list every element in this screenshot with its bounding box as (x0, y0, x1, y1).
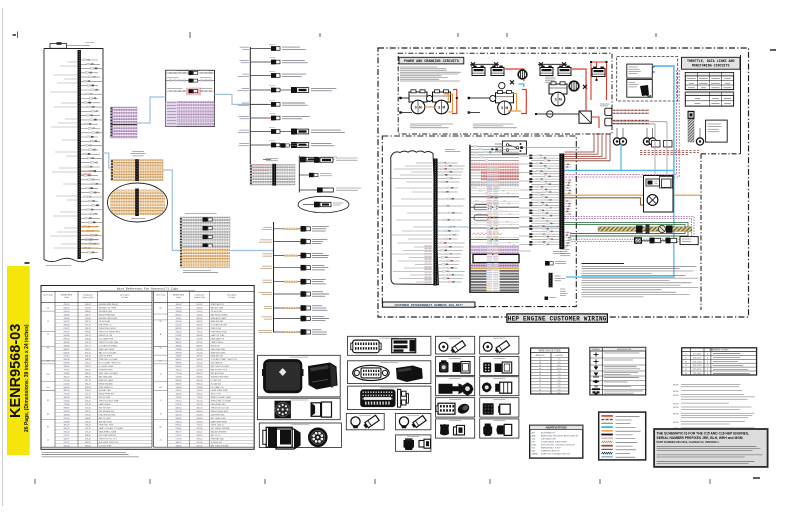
svg-text:958-66: 958-66 (176, 363, 182, 365)
svg-text:FUEL GND COOLANT: FUEL GND COOLANT (99, 372, 119, 375)
svg-text:475-14: 475-14 (176, 401, 182, 403)
svg-text:368-87: 368-87 (197, 345, 203, 347)
svg-text:M: M (419, 105, 422, 109)
svg-text:SERIAL NUMBER PREFIXES JRE, BL: SERIAL NUMBER PREFIXES JRE, BLH, WRH and… (657, 436, 744, 440)
svg-text:C5: C5 (47, 308, 49, 310)
svg-text:170-21: 170-21 (85, 363, 91, 365)
svg-text:LAMP OIL FUEL: LAMP OIL FUEL (211, 334, 225, 337)
svg-text:Wire Reference For Harness(?): Wire Reference For Harness(?) Code (117, 286, 178, 290)
svg-text:W: W (160, 321, 162, 323)
svg-text:199-80: 199-80 (85, 332, 91, 334)
svg-text:350-85: 350-85 (176, 418, 182, 420)
svg-text:SW OIL PWR: SW OIL PWR (99, 397, 111, 399)
svg-text:SIG BAT CAN: SIG BAT CAN (99, 389, 111, 392)
svg-text:THROTTLE, DATA LINKS AND: THROTTLE, DATA LINKS AND (687, 59, 735, 63)
svg-text:449-33: 449-33 (197, 380, 203, 382)
svg-text:550-96: 550-96 (197, 339, 203, 341)
svg-text:CAN PRES CAN: CAN PRES CAN (211, 348, 226, 351)
svg-text:SPEED OIL SW: SPEED OIL SW (99, 335, 113, 337)
svg-text:663-45: 663-45 (64, 387, 70, 389)
svg-text:535-85: 535-85 (197, 414, 203, 416)
svg-text:105-50: 105-50 (197, 401, 203, 403)
svg-text:SM: SM (532, 451, 535, 453)
svg-text:THE SCHEMATIC IS FOR THE C15 A: THE SCHEMATIC IS FOR THE C15 AND C18 HEP… (657, 431, 750, 435)
svg-text:114-1560: 114-1560 (693, 373, 702, 375)
svg-text:127-77: 127-77 (64, 442, 70, 444)
svg-text:585-25: 585-25 (64, 428, 70, 430)
svg-text:846-67: 846-67 (64, 349, 70, 351)
svg-text:HI KEY IN: HI KEY IN (211, 345, 220, 347)
svg-text:Chart Code: Chart Code (43, 294, 53, 297)
svg-text:mm2(SI): mm2(SI) (555, 355, 563, 357)
svg-text:784-19: 784-19 (85, 356, 91, 358)
svg-text:866-27: 866-27 (176, 339, 182, 341)
svg-text:SMMS: SMMS (532, 454, 539, 456)
svg-text:394-87: 394-87 (85, 349, 91, 351)
svg-text:BAT IN THROTTLE: BAT IN THROTTLE (211, 369, 228, 372)
svg-text:DATA LAMP OIL: DATA LAMP OIL (211, 338, 225, 341)
svg-text:GND PRES LO: GND PRES LO (99, 325, 112, 327)
svg-text:396-63: 396-63 (64, 325, 70, 327)
svg-text:114-9719: 114-9719 (693, 357, 702, 359)
svg-text:DATA SW BAT: DATA SW BAT (211, 320, 224, 323)
svg-text:906-97: 906-97 (176, 383, 182, 385)
svg-text:912-42: 912-42 (176, 325, 182, 327)
svg-text:START MOTOR MAG SWITCH: START MOTOR MAG SWITCH (541, 453, 570, 456)
svg-text:797-67: 797-67 (64, 370, 70, 372)
svg-text:103-26: 103-26 (176, 394, 182, 396)
svg-text:908-50: 908-50 (64, 359, 70, 361)
svg-text:SW WIRE CAN: SW WIRE CAN (99, 310, 113, 313)
svg-text:WIRE AUX START: WIRE AUX START (211, 317, 228, 320)
svg-text:988-15: 988-15 (176, 359, 182, 361)
svg-text:COOLANT IN SHIELD: COOLANT IN SHIELD (99, 344, 119, 347)
svg-text:OIL AUX RET: OIL AUX RET (211, 310, 223, 313)
svg-text:153-23: 153-23 (64, 418, 70, 420)
svg-text:AUX RET FUEL: AUX RET FUEL (99, 420, 113, 423)
svg-text:188-65: 188-65 (85, 311, 91, 313)
svg-text:DATA SHIELD DATA: DATA SHIELD DATA (99, 431, 117, 434)
svg-text:309-5283: 309-5283 (693, 365, 703, 367)
svg-text:629-70: 629-70 (197, 404, 203, 406)
svg-text:550-53: 550-53 (197, 390, 203, 392)
svg-text:840-73: 840-73 (197, 373, 203, 375)
svg-text:534-17: 534-17 (85, 314, 91, 316)
svg-text:384-27: 384-27 (85, 383, 91, 385)
svg-text:337-4176: 337-4176 (693, 369, 703, 371)
svg-text:AWG(US): AWG(US) (536, 354, 545, 357)
svg-text:RELAY SW AUX: RELAY SW AUX (99, 382, 114, 385)
svg-text:COMPONENT IDENTIFIER: COMPONENT IDENTIFIER (541, 442, 567, 444)
svg-text:ENGINE OUT TEMP: ENGINE OUT TEMP (99, 307, 117, 309)
svg-text:Code: Code (64, 297, 69, 299)
svg-text:LAMP IN AUX: LAMP IN AUX (99, 403, 112, 406)
svg-text:758-86: 758-86 (197, 387, 203, 389)
svg-text:233-19: 233-19 (197, 311, 203, 313)
svg-text:753-50: 753-50 (176, 332, 182, 334)
svg-text:MONITORING CIRCUITS: MONITORING CIRCUITS (692, 64, 730, 68)
svg-text:J1: J1 (47, 440, 49, 442)
svg-text:673-97: 673-97 (64, 328, 70, 330)
svg-text:470-28: 470-28 (85, 439, 91, 441)
svg-text:160-37: 160-37 (64, 376, 70, 378)
svg-text:BAT AUX ENGINE: BAT AUX ENGINE (211, 431, 227, 434)
svg-text:130-65: 130-65 (197, 314, 203, 316)
svg-text:336-95: 336-95 (197, 307, 203, 309)
svg-text:NOTE: NOTE (673, 407, 679, 409)
svg-text:464-39: 464-39 (197, 325, 203, 327)
svg-text:P2: P2 (159, 361, 161, 363)
svg-text:168-36: 168-36 (64, 414, 70, 416)
svg-text:780-18: 780-18 (64, 366, 70, 368)
svg-text:162-99: 162-99 (85, 366, 91, 368)
svg-text:898-97: 898-97 (64, 408, 70, 410)
svg-text:593-91: 593-91 (85, 411, 91, 413)
svg-text:RET AUX FUEL: RET AUX FUEL (211, 372, 224, 375)
svg-text:LO LEVEL PRES: LO LEVEL PRES (99, 366, 114, 368)
svg-text:310-73: 310-73 (85, 335, 91, 337)
svg-text:J1: J1 (47, 321, 49, 323)
svg-text:732-93: 732-93 (64, 404, 70, 406)
svg-text:744-69: 744-69 (176, 356, 182, 358)
svg-text:AMERICAN TRUCKING ASSOCIATION: AMERICAN TRUCKING ASSOCIATION (541, 434, 578, 437)
svg-text:AB: AB (594, 385, 598, 388)
svg-text:247-23: 247-23 (85, 432, 91, 434)
svg-text:ALTERNATOR: ALTERNATOR (541, 431, 555, 434)
svg-text:KEY KEY KEY: KEY KEY KEY (99, 408, 112, 410)
svg-text:123-69: 123-69 (64, 373, 70, 375)
svg-text:TEMP PWR HI: TEMP PWR HI (211, 342, 224, 344)
svg-text:ENGINE WIRE RELAY: ENGINE WIRE RELAY (99, 303, 119, 306)
svg-text:PWR RELAY FUEL: PWR RELAY FUEL (211, 331, 227, 334)
svg-text:ATA: ATA (532, 434, 536, 437)
svg-text:285-23: 285-23 (85, 328, 91, 330)
svg-text:POWER AND CRANKING CIRCUITS: POWER AND CRANKING CIRCUITS (404, 60, 459, 64)
svg-text:673-78: 673-78 (176, 404, 182, 406)
svg-text:SIG DATA SW: SIG DATA SW (211, 362, 223, 365)
svg-text:948-98: 948-98 (85, 435, 91, 437)
svg-text:426-26: 426-26 (85, 401, 91, 403)
svg-text:161-89: 161-89 (64, 335, 70, 337)
svg-text:Code on She: Code on She (194, 297, 205, 299)
svg-text:AUX WIRE THROTTLE: AUX WIRE THROTTLE (99, 441, 120, 444)
svg-text:382-28: 382-28 (197, 318, 203, 320)
svg-text:HEP ENGINE CUSTOMER WIRING: HEP ENGINE CUSTOMER WIRING (508, 316, 607, 323)
svg-text:ENGINE PRES PRES: ENGINE PRES PRES (99, 318, 118, 320)
svg-text:NOTE: NOTE (673, 422, 679, 424)
svg-text:IN CAN SIG: IN CAN SIG (211, 382, 222, 385)
svg-text:551-30: 551-30 (85, 414, 91, 416)
svg-text:NOTE: NOTE (673, 403, 679, 405)
svg-text:499-10: 499-10 (197, 356, 203, 358)
svg-text:192-80: 192-80 (64, 314, 70, 316)
svg-text:RET LEVEL PWR: RET LEVEL PWR (211, 418, 227, 420)
svg-text:ECM: ECM (532, 445, 537, 447)
svg-text:218-72: 218-72 (85, 428, 91, 430)
svg-text:of Code: of Code (228, 297, 235, 299)
svg-text:Code: Code (176, 297, 181, 299)
svg-text:424-60: 424-60 (197, 421, 203, 423)
svg-text:724-82: 724-82 (64, 401, 70, 403)
svg-text:917-81: 917-81 (85, 408, 91, 410)
svg-text:474-84: 474-84 (85, 307, 91, 309)
svg-text:NOTE: NOTE (673, 391, 679, 393)
svg-text:489-39: 489-39 (64, 390, 70, 392)
svg-text:745-57: 745-57 (176, 370, 182, 372)
svg-text:CUSTOMER INTERCONNECT HARNESS: CUSTOMER INTERCONNECT HARNESS 360-5077 (394, 304, 463, 307)
svg-text:280-47: 280-47 (176, 342, 182, 344)
svg-text:RELAY PRES SIG: RELAY PRES SIG (99, 393, 115, 396)
svg-text:NOTE: NOTE (673, 385, 679, 387)
svg-text:CID: CID (532, 442, 536, 444)
svg-text:717-59: 717-59 (176, 439, 182, 441)
svg-text:THROTTLE LINK CAN: THROTTLE LINK CAN (99, 341, 119, 344)
svg-text:290-93: 290-93 (176, 307, 182, 309)
svg-text:PWR IN SW: PWR IN SW (211, 328, 222, 330)
svg-text:WIRE SW LEVEL: WIRE SW LEVEL (211, 352, 226, 354)
svg-text:ENGINE PWR PRES: ENGINE PWR PRES (211, 376, 230, 378)
svg-text:J1: J1 (47, 334, 49, 336)
svg-text:143-84: 143-84 (176, 376, 182, 378)
svg-text:PWR SPEED IN: PWR SPEED IN (99, 387, 113, 389)
svg-text:507-60: 507-60 (64, 380, 70, 382)
svg-text:853-42: 853-42 (176, 366, 182, 368)
svg-text:S: S (501, 106, 503, 110)
svg-text:770-25: 770-25 (197, 332, 203, 334)
svg-text:WIRE COOLANT TEMP: WIRE COOLANT TEMP (211, 396, 232, 399)
svg-text:KEY ENGINE RET: KEY ENGINE RET (99, 411, 116, 413)
svg-text:632-94: 632-94 (197, 370, 203, 372)
svg-text:126-19: 126-19 (85, 421, 91, 423)
svg-text:811-14: 811-14 (176, 390, 182, 392)
svg-text:THROTTLE AUX TEMP: THROTTLE AUX TEMP (99, 400, 120, 403)
svg-text:943-30: 943-30 (197, 435, 203, 437)
svg-text:NOTE: NOTE (673, 413, 679, 415)
svg-text:917-91: 917-91 (176, 335, 182, 337)
svg-text:397-14: 397-14 (197, 439, 203, 441)
svg-text:528-31: 528-31 (64, 352, 70, 354)
svg-text:531-15: 531-15 (64, 356, 70, 358)
svg-text:OUT LAMP PWR: OUT LAMP PWR (99, 338, 114, 341)
svg-text:592-80: 592-80 (197, 428, 203, 430)
svg-text:319-14: 319-14 (64, 311, 70, 313)
svg-text:M: M (443, 105, 446, 109)
svg-text:254-20: 254-20 (85, 390, 91, 392)
svg-text:ABBREVIATIONS: ABBREVIATIONS (546, 426, 568, 430)
svg-text:405-92: 405-92 (85, 442, 91, 444)
svg-text:OIL START OIL: OIL START OIL (211, 386, 224, 389)
svg-text:485-74: 485-74 (197, 408, 203, 410)
svg-text:294-67: 294-67 (176, 428, 182, 430)
svg-text:LO RET SIG: LO RET SIG (211, 380, 222, 382)
svg-text:391-59: 391-59 (85, 370, 91, 372)
svg-text:749-42: 749-42 (85, 425, 91, 427)
svg-text:of Code: of Code (121, 297, 128, 299)
svg-text:P2: P2 (47, 400, 49, 402)
svg-text:876-15: 876-15 (176, 425, 182, 427)
svg-text:711-99: 711-99 (197, 397, 203, 399)
svg-text:COOLANT IN LINK: COOLANT IN LINK (211, 324, 228, 327)
svg-text:SPEED RELAY AUX: SPEED RELAY AUX (211, 410, 229, 413)
svg-text:OIL AUX BAT: OIL AUX BAT (99, 320, 111, 323)
svg-text:EMERGENCY STOP: EMERGENCY STOP (541, 448, 561, 450)
svg-text:394-64: 394-64 (197, 418, 203, 420)
svg-text:929-43: 929-43 (176, 321, 182, 323)
svg-text:THROTTLE OIL OUT: THROTTLE OIL OUT (99, 439, 118, 441)
svg-text:330-28: 330-28 (197, 359, 203, 361)
svg-text:THROTTLE WIRE PRES: THROTTLE WIRE PRES (99, 332, 121, 334)
svg-text:IN SPEED PWR: IN SPEED PWR (99, 370, 113, 372)
svg-text:818-85: 818-85 (197, 376, 203, 378)
svg-text:472-88: 472-88 (64, 421, 70, 423)
svg-text:S: S (555, 97, 557, 101)
svg-text:LEVEL LINK LO: LEVEL LINK LO (211, 425, 225, 427)
svg-text:576-84: 576-84 (85, 339, 91, 341)
svg-text:THROTTLE OUT SIG: THROTTLE OUT SIG (211, 408, 230, 410)
svg-text:ELECTRONIC CONTROL MODULE: ELECTRONIC CONTROL MODULE (541, 445, 575, 447)
svg-text:COOLANT START THROTTLE: COOLANT START THROTTLE (211, 358, 238, 361)
svg-text:170-64: 170-64 (176, 387, 182, 389)
svg-text:RET LO LO: RET LO LO (211, 435, 221, 437)
svg-text:485-29: 485-29 (64, 425, 70, 427)
svg-text:369-46: 369-46 (64, 397, 70, 399)
svg-text:GG: GG (47, 374, 50, 376)
svg-text:112-72: 112-72 (85, 394, 91, 396)
svg-text:BAT OIL GND: BAT OIL GND (99, 417, 111, 420)
svg-text:PWR BAT GND: PWR BAT GND (211, 438, 225, 441)
svg-text:KEY SHIELD ENGINE: KEY SHIELD ENGINE (211, 428, 231, 430)
svg-text:463-31: 463-31 (85, 373, 91, 375)
svg-text:403-14: 403-14 (176, 408, 182, 410)
svg-text:503-23: 503-23 (64, 411, 70, 413)
svg-text:GG: GG (47, 387, 50, 389)
svg-text:J1: J1 (160, 400, 162, 402)
svg-text:104-28: 104-28 (85, 397, 91, 399)
svg-text:545-27: 545-27 (197, 432, 203, 434)
svg-text:LINK OIL PRES: LINK OIL PRES (99, 356, 113, 358)
svg-text:226-7143: 226-7143 (693, 361, 703, 363)
svg-text:992-73: 992-73 (85, 380, 91, 382)
svg-text:SHIELD BAT COOLANT: SHIELD BAT COOLANT (211, 400, 232, 403)
svg-text:J1: J1 (160, 374, 162, 376)
svg-text:662-82: 662-82 (176, 328, 182, 330)
svg-text:RET THROTTLE AUX: RET THROTTLE AUX (211, 365, 230, 368)
svg-text:754-42: 754-42 (197, 363, 203, 365)
svg-text:723-11: 723-11 (176, 318, 182, 320)
svg-text:364-64: 364-64 (197, 411, 203, 413)
svg-text:407-77: 407-77 (85, 345, 91, 347)
svg-text:CAN PWR LINK: CAN PWR LINK (211, 413, 225, 416)
svg-text:Code on She: Code on She (82, 297, 93, 299)
svg-text:895-50: 895-50 (64, 339, 70, 341)
svg-text:856-28: 856-28 (176, 411, 182, 413)
svg-text:BAT DATA CAN: BAT DATA CAN (99, 375, 113, 378)
svg-text:WIRE GND TEMP: WIRE GND TEMP (99, 349, 115, 351)
svg-text:369-98: 369-98 (197, 335, 203, 337)
svg-text:W: W (47, 361, 49, 363)
svg-text:STARTING MOTOR: STARTING MOTOR (541, 450, 560, 453)
svg-text:BAT AUX CAN: BAT AUX CAN (211, 306, 224, 309)
svg-text:862-47: 862-47 (176, 314, 182, 316)
svg-text:602-80: 602-80 (197, 349, 203, 351)
svg-text:845-82: 845-82 (176, 380, 182, 382)
svg-text:504-93: 504-93 (85, 304, 91, 306)
svg-text:183-83: 183-83 (64, 345, 70, 347)
svg-text:475-26: 475-26 (197, 352, 203, 354)
svg-text:717-40: 717-40 (176, 373, 182, 375)
svg-text:886-46: 886-46 (85, 376, 91, 378)
svg-text:100-82: 100-82 (85, 418, 91, 420)
svg-text:BAT OUT COOLANT: BAT OUT COOLANT (99, 351, 117, 354)
svg-text:878-54: 878-54 (197, 366, 203, 368)
svg-text:26 Page, (Dimensions: 39 inche: 26 Page, (Dimensions: 39 inches x 24 inc… (24, 324, 30, 432)
svg-text:535-14: 535-14 (176, 421, 182, 423)
svg-text:P2: P2 (47, 426, 49, 428)
svg-text:480-68: 480-68 (176, 345, 182, 347)
svg-text:307-32: 307-32 (197, 342, 203, 344)
svg-text:448-98: 448-98 (85, 359, 91, 361)
svg-text:801-97: 801-97 (197, 304, 203, 306)
svg-text:S: S (415, 105, 417, 109)
svg-text:PRES PRES LEVEL: PRES PRES LEVEL (99, 328, 116, 330)
svg-text:WIRE SIG LAMP: WIRE SIG LAMP (99, 379, 114, 382)
svg-text:233-83: 233-83 (176, 349, 182, 351)
svg-text:PWR FUEL PWR: PWR FUEL PWR (99, 425, 114, 427)
svg-text:552-84: 552-84 (197, 442, 203, 444)
svg-text:BAT RELAY SPEED: BAT RELAY SPEED (211, 313, 229, 316)
svg-text:511-80: 511-80 (64, 383, 70, 385)
svg-text:299-99: 299-99 (176, 352, 182, 354)
svg-text:SW LO OUT: SW LO OUT (211, 394, 222, 396)
svg-text:431-29: 431-29 (64, 304, 70, 306)
svg-text:PWR FUEL COOLANT: PWR FUEL COOLANT (99, 358, 119, 361)
svg-text:177-3449: 177-3449 (693, 353, 703, 355)
svg-text:469-72: 469-72 (176, 442, 182, 444)
svg-text:E-S: E-S (532, 448, 536, 450)
svg-text:J1: J1 (160, 413, 162, 415)
svg-text:KENR9568-03: KENR9568-03 (8, 324, 24, 418)
svg-text:M: M (506, 106, 509, 110)
svg-text:GND SHIELD FUEL: GND SHIELD FUEL (99, 414, 116, 416)
svg-text:W: W (160, 347, 162, 349)
svg-text:J1: J1 (160, 440, 162, 442)
svg-text:SIG TEMP SENSOR: SIG TEMP SENSOR (99, 435, 117, 437)
svg-text:756-33: 756-33 (176, 311, 182, 313)
svg-text:START AUX IN: START AUX IN (211, 303, 224, 306)
svg-text:HI COOLANT THROTTLE: HI COOLANT THROTTLE (99, 362, 122, 365)
svg-text:913-33: 913-33 (85, 342, 91, 344)
svg-text:396-77: 396-77 (176, 432, 182, 434)
svg-text:406-41: 406-41 (64, 342, 70, 344)
svg-text:648-22: 648-22 (64, 307, 70, 309)
svg-text:539-95: 539-95 (197, 328, 203, 330)
svg-text:LAMP WIRE WIRE: LAMP WIRE WIRE (211, 420, 228, 423)
svg-text:326-15: 326-15 (85, 321, 91, 323)
svg-text:LAMP COOLANT COOLANT: LAMP COOLANT COOLANT (99, 427, 124, 430)
svg-text:320-43: 320-43 (176, 414, 182, 416)
svg-text:418-25: 418-25 (197, 394, 203, 396)
svg-text:946-67: 946-67 (197, 321, 203, 323)
svg-text:506-16: 506-16 (64, 321, 70, 323)
svg-text:Chart Code: Chart Code (156, 294, 166, 297)
svg-text:693-68: 693-68 (64, 363, 70, 365)
svg-text:742-84: 742-84 (85, 318, 91, 320)
svg-text:247-79: 247-79 (85, 325, 91, 327)
svg-text:DATA SW OUT: DATA SW OUT (211, 355, 225, 358)
svg-text:214-57: 214-57 (176, 435, 182, 437)
svg-text:668-24: 668-24 (197, 383, 203, 385)
svg-text:M: M (559, 97, 562, 101)
